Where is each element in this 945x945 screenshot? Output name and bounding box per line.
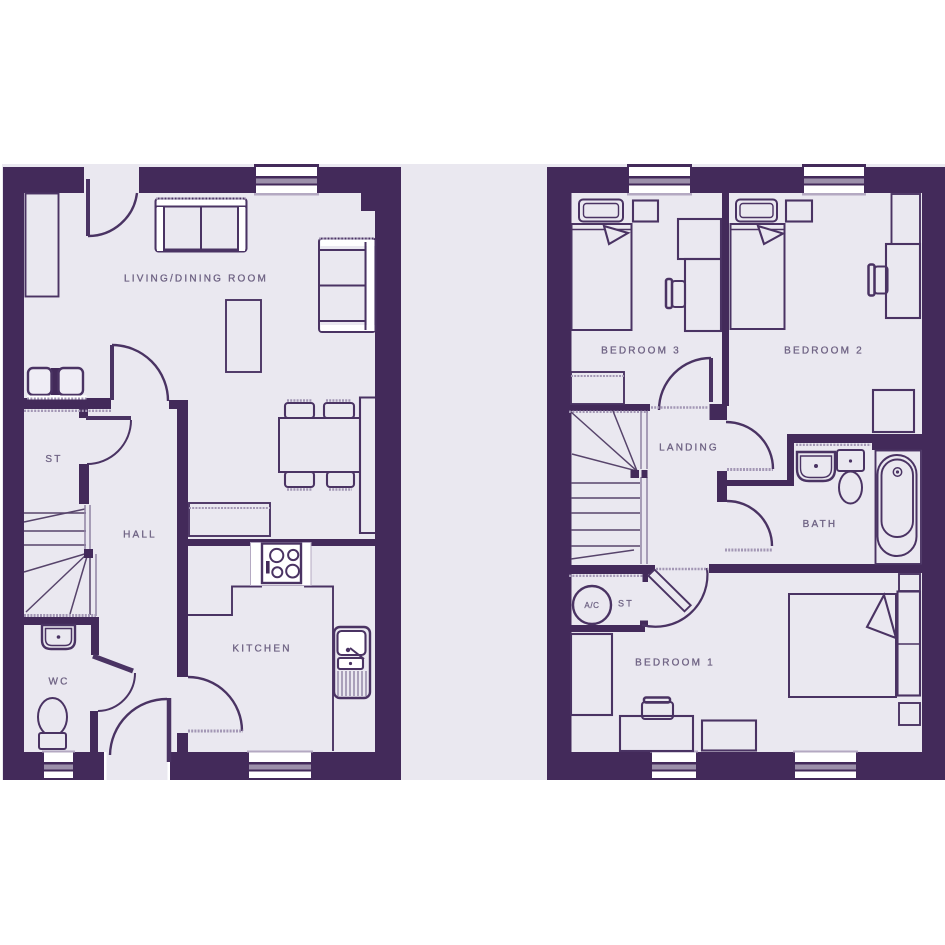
svg-text:LIVING/DINING ROOM: LIVING/DINING ROOM [124,274,268,285]
svg-text:KITCHEN: KITCHEN [232,644,291,655]
svg-text:BEDROOM 1: BEDROOM 1 [635,658,715,669]
svg-text:BEDROOM 3: BEDROOM 3 [601,346,681,357]
svg-text:BEDROOM 2: BEDROOM 2 [784,346,864,357]
svg-text:ST: ST [618,599,634,609]
svg-text:LANDING: LANDING [659,443,719,454]
svg-text:HALL: HALL [123,530,157,541]
svg-text:ST: ST [45,454,62,465]
svg-text:A/C: A/C [584,601,599,610]
svg-text:BATH: BATH [803,519,838,530]
svg-text:WC: WC [48,677,69,688]
